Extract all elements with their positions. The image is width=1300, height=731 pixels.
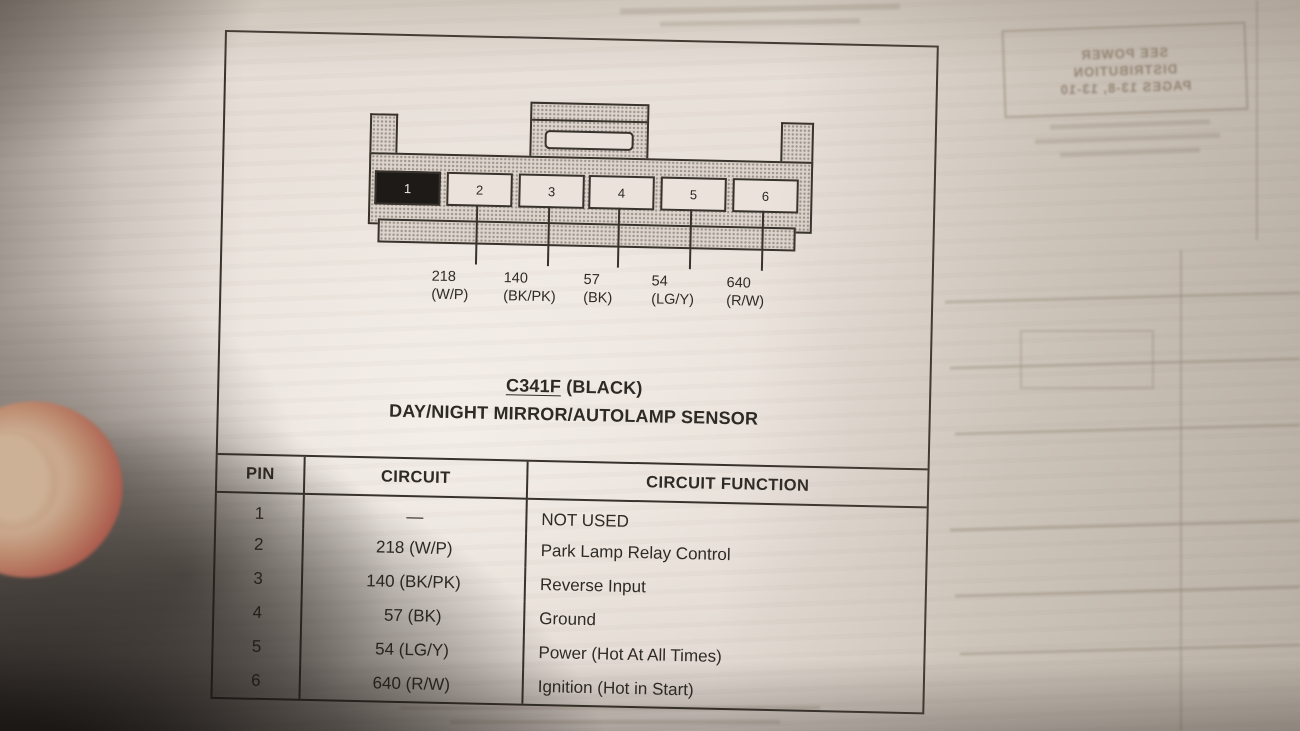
pin-cell: 5 bbox=[213, 629, 302, 665]
finger bbox=[0, 378, 146, 602]
ghost-note-box: SEE POWER DISTRIBUTION PAGES 13-8, 13-10 bbox=[1002, 22, 1249, 118]
fingernail bbox=[0, 422, 69, 542]
circuit-cell: 218 (W/P) bbox=[303, 529, 527, 568]
pin-cell: 3 bbox=[215, 561, 304, 597]
circuit-cell: 57 (BK) bbox=[302, 597, 526, 636]
circuit-number: 640 bbox=[726, 274, 826, 294]
connector-color-note: (BLACK) bbox=[561, 376, 643, 398]
connector-pin-1: 1 bbox=[374, 170, 441, 205]
connector-pin-6: 6 bbox=[732, 178, 799, 213]
circuit-cell: 54 (LG/Y) bbox=[301, 631, 525, 670]
pin-cell: 2 bbox=[215, 527, 304, 563]
photo-background: SEE POWER DISTRIBUTION PAGES 13-8, 13-10 bbox=[0, 0, 1300, 731]
pin-cell: 1 bbox=[216, 493, 305, 529]
wiring-figure: 1 2 3 4 5 6 218 (W/P) 140 (BK/PK) 57 (BK… bbox=[210, 30, 938, 714]
pin-cell: 6 bbox=[212, 663, 301, 699]
connector-id: C341F bbox=[506, 375, 561, 396]
circuit-cell: 140 (BK/PK) bbox=[303, 563, 527, 602]
connector-pin-4: 4 bbox=[588, 175, 655, 210]
pinout-table: PIN CIRCUIT CIRCUIT FUNCTION 1 — NOT USE… bbox=[212, 453, 927, 712]
connector-pin-3: 3 bbox=[518, 173, 585, 208]
connector-pin-2: 2 bbox=[446, 172, 513, 207]
ghost-note-text: SEE POWER DISTRIBUTION PAGES 13-8, 13-10 bbox=[1058, 42, 1191, 98]
callout-label-pin6: 640 (R/W) bbox=[726, 274, 827, 312]
header-pin: PIN bbox=[217, 455, 306, 495]
connector-tab bbox=[529, 102, 649, 165]
connector-tab-band bbox=[532, 119, 647, 124]
header-circuit: CIRCUIT bbox=[305, 457, 529, 500]
connector-pin-5: 5 bbox=[660, 177, 727, 212]
function-cell: Ignition (Hot in Start) bbox=[523, 670, 923, 713]
circuit-cell: 640 (R/W) bbox=[300, 665, 524, 704]
color-code: (R/W) bbox=[726, 292, 826, 312]
connector-tab-slot bbox=[544, 130, 633, 151]
pin-cell: 4 bbox=[214, 595, 303, 631]
circuit-cell: — bbox=[304, 495, 528, 534]
figure-titles: C341F (BLACK) DAY/NIGHT MIRROR/AUTOLAMP … bbox=[218, 365, 929, 436]
connector-diagram: 1 2 3 4 5 6 218 (W/P) 140 (BK/PK) 57 (BK… bbox=[220, 32, 937, 357]
